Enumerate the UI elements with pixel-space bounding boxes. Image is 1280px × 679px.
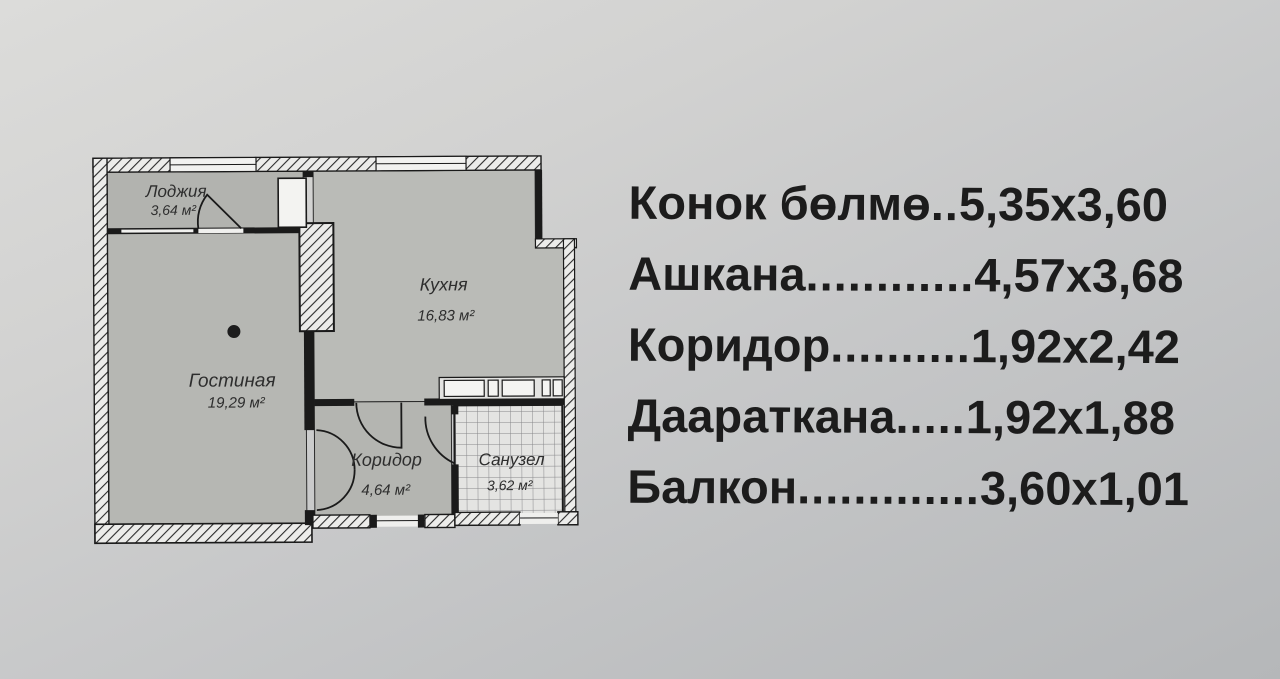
- paper-photo: Лоджия 3,64 м² Гостиная 19,29 м² Кухня 1…: [0, 0, 1280, 679]
- label-corridor-area: 4,64 м²: [361, 482, 411, 499]
- dimension-row-toilet: Даараткана.....1,92x1,88: [628, 380, 1228, 454]
- room-size: 1,92x2,42: [971, 319, 1180, 373]
- label-loggia-area: 3,64 м²: [151, 202, 198, 218]
- room-name: Конок бөлмө: [629, 176, 931, 230]
- bathroom-bottom-opening: [520, 513, 558, 524]
- wall-right: [563, 239, 575, 525]
- window-kitchen: [376, 156, 466, 170]
- floor-plan-drawing: Лоджия 3,64 м² Гостиная 19,29 м² Кухня 1…: [91, 147, 585, 552]
- room-size: 4,57x3,68: [974, 248, 1183, 302]
- loggia-door-leaf: [278, 178, 306, 227]
- window-loggia: [170, 157, 256, 171]
- label-bathroom-area: 3,62 м²: [487, 477, 534, 493]
- dot-leader: ............: [806, 247, 975, 301]
- room-size: 3,60x1,01: [980, 461, 1189, 515]
- label-corridor-name: Коридор: [351, 450, 422, 470]
- label-living-name: Гостиная: [189, 370, 276, 391]
- entry-opening: [370, 515, 425, 528]
- wall-left: [93, 158, 109, 543]
- wall-bottom-living: [95, 523, 312, 543]
- dimension-row-corridor: Коридор..........1,92x2,42: [628, 309, 1228, 383]
- kitchen-counter: [439, 377, 564, 400]
- room-name: Даараткана: [628, 389, 896, 443]
- label-living-area: 19,29 м²: [208, 394, 266, 411]
- room-name: Ашкана: [628, 247, 806, 301]
- dot-leader: ..........: [830, 319, 971, 373]
- label-kitchen-name: Кухня: [420, 274, 468, 294]
- dot-leader: .....: [895, 390, 966, 443]
- room-loggia: [107, 171, 303, 231]
- wall-notch-vertical: [535, 170, 542, 240]
- dimension-row-kitchen: Ашкана............4,57x3,68: [628, 238, 1228, 312]
- punch-hole-dot: [227, 325, 240, 338]
- dimension-row-balcony: Балкон.............3,60x1,01: [627, 451, 1227, 525]
- dot-leader: .............: [797, 460, 980, 514]
- room-name: Балкон: [627, 460, 797, 514]
- floor-plan: Лоджия 3,64 м² Гостиная 19,29 м² Кухня 1…: [91, 147, 585, 552]
- wall-top: [93, 156, 541, 172]
- dimension-row-guest-room: Конок бөлмө..5,35x3,60: [628, 167, 1228, 241]
- dot-leader: ..: [931, 177, 959, 230]
- label-kitchen-area: 16,83 м²: [417, 307, 475, 324]
- label-loggia-name: Лоджия: [145, 182, 207, 201]
- room-name: Коридор: [628, 318, 830, 372]
- wall-column: [299, 223, 334, 331]
- room-size: 5,35x3,60: [959, 177, 1168, 231]
- wall-loggia-bottom: [107, 227, 303, 234]
- label-bathroom-name: Санузел: [479, 450, 545, 469]
- room-dimensions-list: Конок бөлмө..5,35x3,60 Ашкана...........…: [627, 167, 1229, 525]
- room-size: 1,92x1,88: [966, 390, 1175, 444]
